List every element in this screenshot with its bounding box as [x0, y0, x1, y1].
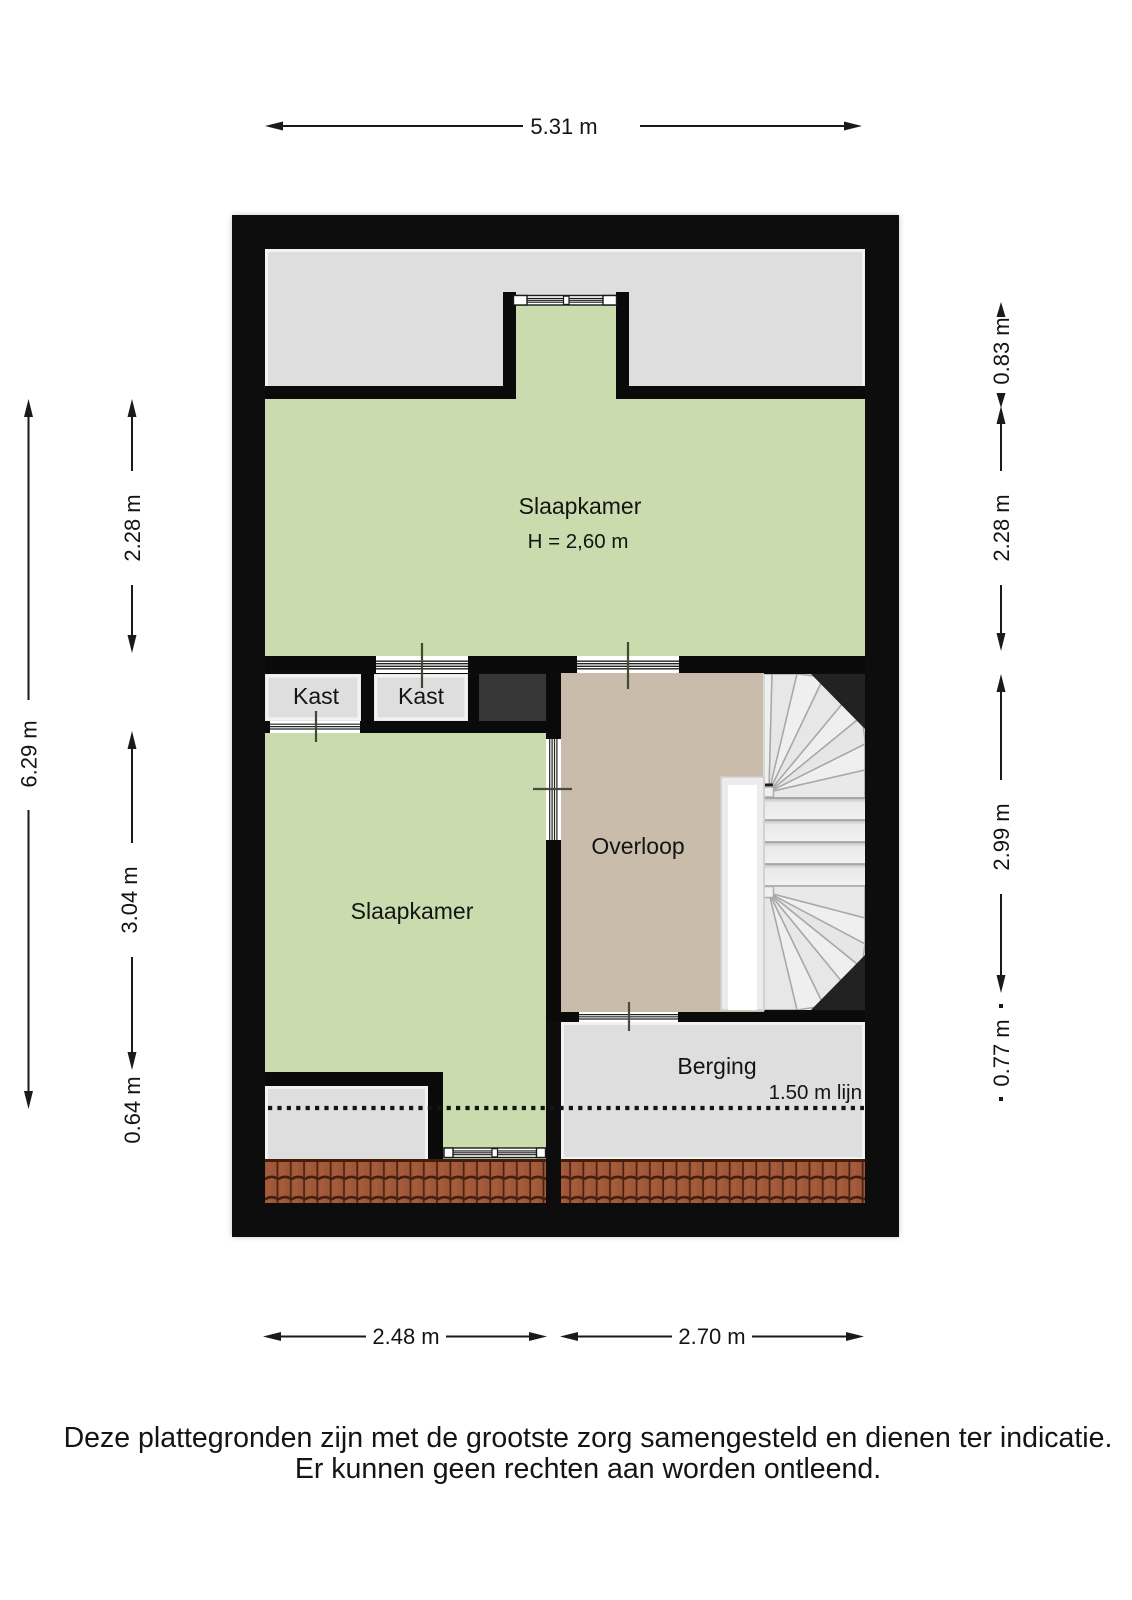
- svg-text:Deze plattegronden zijn met de: Deze plattegronden zijn met de grootste …: [64, 1422, 1113, 1454]
- svg-text:2.48 m: 2.48 m: [372, 1324, 439, 1349]
- svg-text:0.64 m: 0.64 m: [120, 1076, 145, 1143]
- svg-text:Overloop: Overloop: [591, 833, 684, 859]
- svg-text:2.28 m: 2.28 m: [120, 494, 145, 561]
- svg-text:0.77 m: 0.77 m: [989, 1019, 1014, 1086]
- svg-text:2.70 m: 2.70 m: [678, 1324, 745, 1349]
- svg-text:Slaapkamer: Slaapkamer: [351, 898, 474, 924]
- svg-text:H = 2,60 m: H = 2,60 m: [528, 530, 629, 553]
- svg-text:Kast: Kast: [293, 683, 340, 709]
- svg-text:Slaapkamer: Slaapkamer: [519, 493, 642, 519]
- svg-text:2.99 m: 2.99 m: [989, 803, 1014, 870]
- svg-text:Er kunnen geen rechten aan wor: Er kunnen geen rechten aan worden ontlee…: [295, 1453, 881, 1485]
- svg-text:3.04 m: 3.04 m: [117, 866, 142, 933]
- svg-text:Berging: Berging: [677, 1053, 756, 1079]
- svg-text:0.83 m: 0.83 m: [989, 317, 1014, 384]
- svg-text:5.31 m: 5.31 m: [530, 114, 597, 139]
- svg-text:1.50 m lijn: 1.50 m lijn: [769, 1081, 862, 1104]
- svg-text:6.29 m: 6.29 m: [17, 720, 42, 787]
- svg-text:2.28 m: 2.28 m: [989, 494, 1014, 561]
